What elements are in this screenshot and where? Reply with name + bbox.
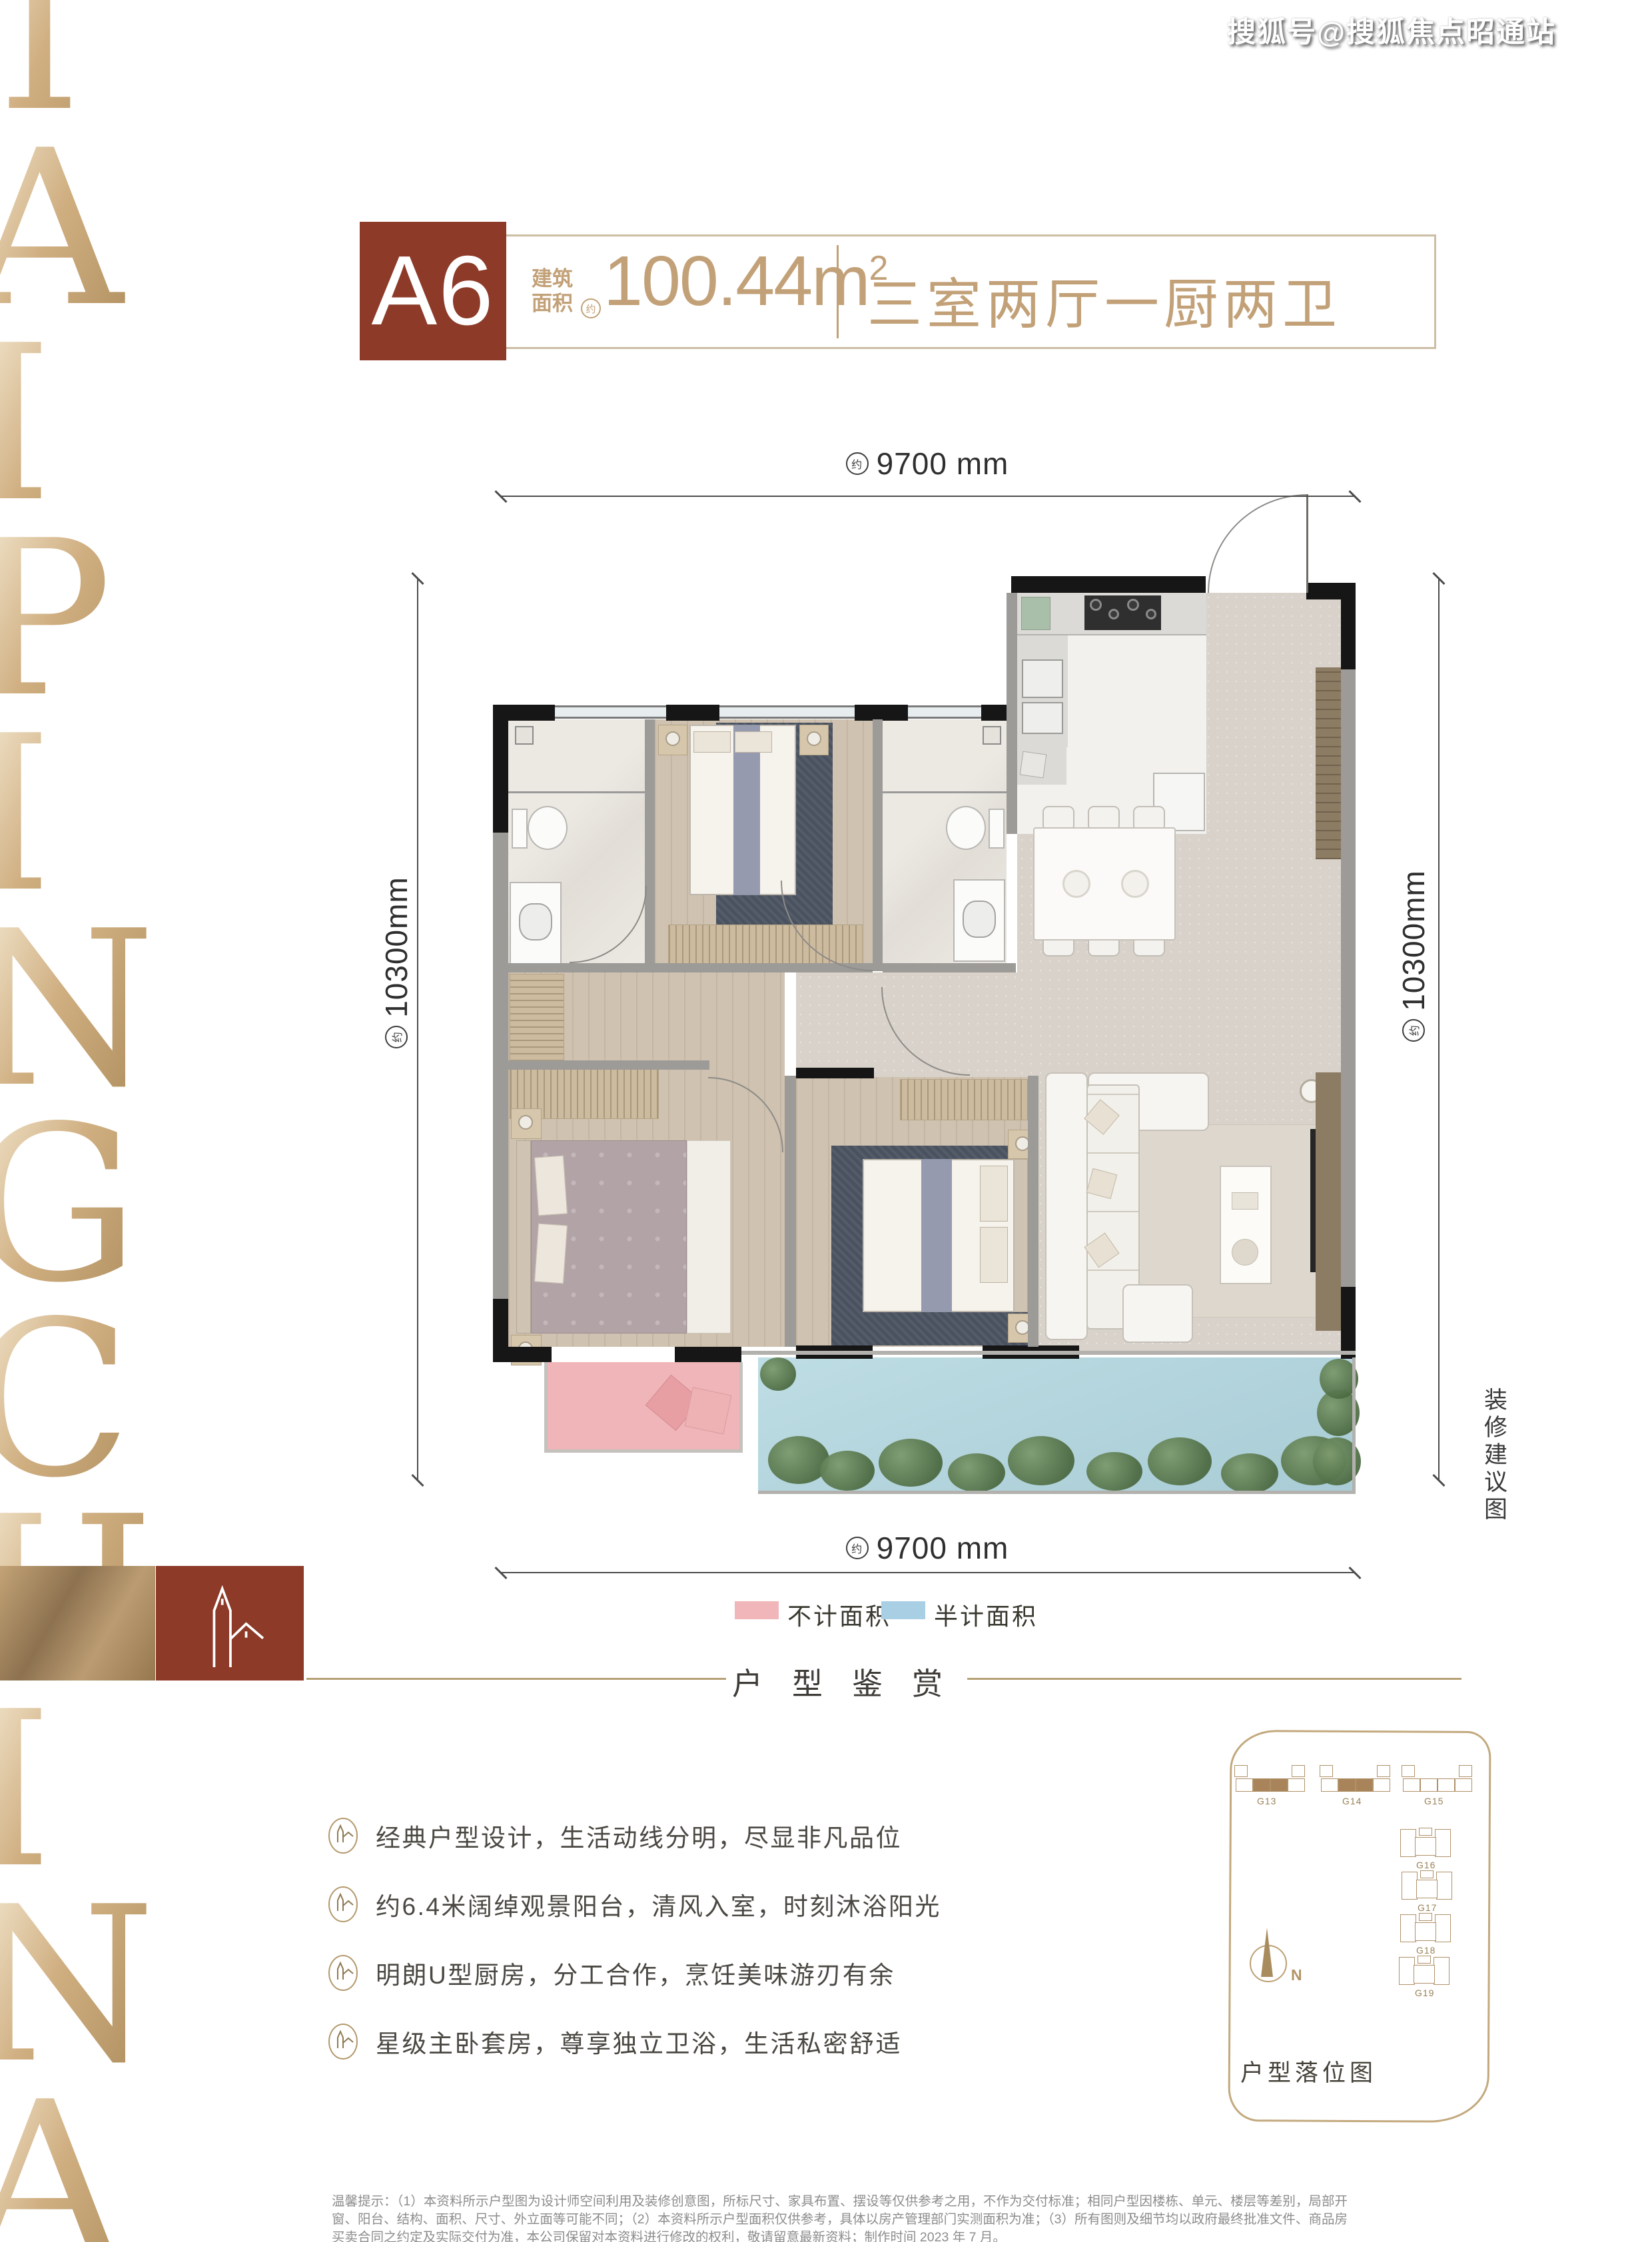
building-label: G18 bbox=[1416, 1945, 1436, 1956]
dim-right-value: 10300mm bbox=[1396, 870, 1432, 1011]
layout-text: 三室两厅一厨两卫 bbox=[867, 260, 1342, 339]
bed-pillow bbox=[534, 1156, 568, 1216]
dim-bottom-value: 9700 mm bbox=[877, 1530, 1009, 1566]
bed-runner bbox=[921, 1159, 952, 1312]
section-line-right bbox=[967, 1678, 1461, 1680]
burner-icon bbox=[1146, 609, 1156, 619]
note-char: 议 bbox=[1484, 1469, 1507, 1496]
wall-segment bbox=[1341, 1286, 1356, 1359]
terrace-rim bbox=[739, 1362, 743, 1453]
bed-pillow bbox=[735, 731, 772, 753]
brand-letter: N bbox=[0, 912, 168, 1107]
wall-segment bbox=[645, 719, 655, 971]
sink-bowl bbox=[963, 901, 996, 938]
burner-icon bbox=[1090, 599, 1102, 611]
poster-page: T A I P I N G C H I N A 搜狐号@搜狐焦点昭通站 A6 建… bbox=[0, 0, 1652, 2242]
building-label: G16 bbox=[1416, 1860, 1436, 1870]
terrace-rim bbox=[546, 1449, 741, 1453]
building-label: G13 bbox=[1257, 1796, 1276, 1806]
plant bbox=[948, 1453, 1005, 1492]
house-bullet-icon bbox=[328, 1886, 358, 1923]
dim-label-left: 约 10300mm bbox=[380, 843, 413, 1082]
wall-segment bbox=[1007, 593, 1017, 834]
bed-pillow bbox=[534, 1224, 568, 1284]
bed-headboard bbox=[1013, 1159, 1028, 1312]
wall-segment bbox=[883, 963, 1016, 972]
brand-letter: A bbox=[0, 131, 168, 326]
coffee-table bbox=[1220, 1166, 1272, 1284]
toilet-bowl bbox=[946, 806, 986, 850]
approx-circle-icon: 约 bbox=[846, 452, 869, 475]
lamp-icon bbox=[665, 731, 680, 746]
unit-badge: A6 bbox=[360, 222, 506, 360]
wardrobe bbox=[900, 1079, 1029, 1120]
section-line-left bbox=[306, 1678, 726, 1680]
feature-text: 星级主卧套房，尊享独立卫浴，生活私密舒适 bbox=[376, 2024, 902, 2059]
tv bbox=[1310, 1129, 1316, 1272]
compass-north-label: N bbox=[1291, 1966, 1302, 1984]
compass-needle-icon bbox=[1261, 1928, 1273, 1977]
bed-pillow bbox=[980, 1166, 1008, 1222]
door-arc bbox=[1208, 494, 1308, 593]
lamp-icon bbox=[807, 731, 821, 746]
header-divider bbox=[837, 245, 839, 338]
note-char: 图 bbox=[1484, 1496, 1507, 1523]
bed-sheet bbox=[687, 1140, 731, 1333]
brand-letter: I bbox=[0, 326, 168, 522]
area-value: 100.44m2 bbox=[604, 241, 887, 322]
legend-swatch-half bbox=[881, 1601, 925, 1619]
brand-letter: I bbox=[0, 717, 168, 912]
brand-letter: N bbox=[0, 1888, 168, 2083]
brand-letter: I bbox=[0, 1692, 168, 1888]
feature-text: 约6.4米阔绰观景阳台，清风入室，时刻沐浴阳光 bbox=[376, 1886, 941, 1922]
wall-segment bbox=[493, 963, 655, 972]
window bbox=[908, 705, 981, 719]
feature-text: 经典户型设计，生活动线分明，尽显非凡品位 bbox=[376, 1818, 902, 1854]
legend-label-half: 半计面积 bbox=[934, 1597, 1038, 1632]
sink-basin bbox=[1022, 659, 1063, 698]
burner-icon bbox=[1127, 599, 1139, 611]
plate bbox=[1062, 870, 1090, 898]
brand-letter: G bbox=[0, 1107, 168, 1302]
wall-segment bbox=[493, 705, 508, 833]
bed-headboard bbox=[516, 1140, 531, 1333]
plant bbox=[879, 1439, 943, 1487]
dim-line-bottom bbox=[500, 1572, 1356, 1573]
building-label: G15 bbox=[1424, 1796, 1444, 1806]
shower-glass bbox=[883, 791, 1007, 793]
window bbox=[719, 705, 855, 719]
wall-segment bbox=[1028, 1076, 1038, 1347]
feature-item: 经典户型设计，生活动线分明，尽显非凡品位 bbox=[328, 1817, 902, 1854]
wall-segment bbox=[666, 705, 719, 721]
toilet-tank bbox=[512, 809, 528, 849]
toilet-tank bbox=[989, 809, 1005, 849]
decor-suggestion-note: 装 修 建 议 图 bbox=[1484, 1387, 1507, 1523]
unit-code: A6 bbox=[371, 234, 494, 348]
note-char: 装 bbox=[1484, 1387, 1507, 1414]
feature-item: 明朗U型厨房，分工合作，烹饪美味游刃有余 bbox=[328, 1954, 895, 1992]
dim-left-value: 10300mm bbox=[378, 877, 414, 1018]
armchair bbox=[1122, 1284, 1193, 1343]
project-logo bbox=[156, 1566, 304, 1681]
wall-segment bbox=[796, 1068, 874, 1078]
approx-circle-icon: 约 bbox=[385, 1026, 408, 1048]
trash-bin bbox=[1020, 751, 1047, 779]
dim-line-top bbox=[500, 496, 1356, 497]
cutting-board bbox=[1021, 597, 1050, 630]
area-prefix: 建筑 面积 bbox=[532, 266, 573, 316]
wall-segment bbox=[493, 833, 508, 1299]
balcony-rim bbox=[758, 1491, 1356, 1494]
wall-segment bbox=[1341, 669, 1356, 1287]
plate bbox=[1121, 870, 1149, 898]
brand-letter: C bbox=[0, 1302, 168, 1497]
terrace-rim bbox=[544, 1362, 548, 1453]
sink-bowl bbox=[519, 903, 552, 940]
dim-top-value: 9700 mm bbox=[877, 446, 1009, 482]
wall-segment bbox=[873, 719, 883, 971]
terrace-pillow bbox=[684, 1387, 731, 1434]
area-number: 100.44m bbox=[604, 242, 869, 320]
house-bullet-icon bbox=[328, 1817, 358, 1854]
dim-label-right: 约 10300mm bbox=[1397, 836, 1430, 1076]
toilet-bowl bbox=[528, 806, 568, 850]
note-char: 建 bbox=[1484, 1441, 1507, 1469]
disclaimer-text: 温馨提示：（1）本资料所示户型图为设计师空间利用及装修创意图，所标尺寸、家具布置… bbox=[332, 2193, 1348, 2242]
plant bbox=[1008, 1436, 1074, 1485]
building-label: G19 bbox=[1415, 1988, 1434, 1998]
watermark: 搜狐号@搜狐焦点昭通站 bbox=[1227, 9, 1556, 51]
house-bullet-icon bbox=[328, 1954, 358, 1992]
wall-segment bbox=[508, 1060, 709, 1070]
shower-glass bbox=[508, 791, 645, 793]
table-decor bbox=[1232, 1192, 1258, 1210]
brand-letter: P bbox=[0, 522, 168, 717]
plant bbox=[1221, 1453, 1278, 1493]
sink-basin bbox=[1022, 702, 1063, 734]
table-decor bbox=[1232, 1239, 1258, 1266]
house-bullet-icon bbox=[328, 2023, 358, 2060]
section-title: 户型鉴赏 bbox=[723, 1660, 999, 1704]
tv-cabinet bbox=[1316, 1072, 1341, 1331]
shower-head-icon bbox=[983, 726, 1001, 745]
lamp-icon bbox=[518, 1115, 533, 1130]
window bbox=[555, 705, 666, 719]
gold-texture-band bbox=[0, 1566, 155, 1681]
feature-item: 约6.4米阔绰观景阳台，清风入室，时刻沐浴阳光 bbox=[328, 1886, 941, 1923]
dim-line-left bbox=[417, 578, 418, 1480]
dining-table bbox=[1033, 827, 1176, 940]
approx-circle-icon: 约 bbox=[581, 298, 601, 318]
approx-circle-icon: 约 bbox=[846, 1537, 869, 1559]
approx-circle-icon: 约 bbox=[1402, 1019, 1425, 1042]
wall-segment bbox=[785, 1076, 796, 1347]
feature-item: 星级主卧套房，尊享独立卫浴，生活私密舒适 bbox=[328, 2023, 902, 2060]
plant bbox=[1148, 1437, 1212, 1485]
burner-icon bbox=[1108, 609, 1119, 619]
feature-text: 明朗U型厨房，分工合作，烹饪美味游刃有余 bbox=[376, 1955, 895, 1991]
plant bbox=[1086, 1452, 1142, 1491]
balcony-rim bbox=[1352, 1357, 1356, 1494]
legend-swatch-excluded bbox=[735, 1601, 779, 1619]
plant bbox=[820, 1451, 875, 1491]
wall-segment bbox=[855, 705, 908, 721]
area-prefix-line1: 建筑 bbox=[532, 266, 573, 291]
brand-vertical-taiping-china: T A I P I N G C H I N A bbox=[0, 0, 168, 2242]
bed-pillow bbox=[980, 1227, 1008, 1283]
wall-segment bbox=[1011, 576, 1206, 593]
sofa-back bbox=[1045, 1072, 1088, 1340]
door-leaf bbox=[1306, 494, 1308, 593]
site-plan-caption: 户型落位图 bbox=[1240, 2054, 1377, 2088]
floor-plan bbox=[455, 526, 1356, 1499]
dim-label-top: 约 9700 mm bbox=[799, 445, 1055, 482]
dim-label-bottom: 约 9700 mm bbox=[799, 1529, 1055, 1567]
wall-segment bbox=[493, 1347, 552, 1362]
wall-segment bbox=[675, 1347, 741, 1362]
balcony-door-line bbox=[741, 1351, 1356, 1355]
note-char: 修 bbox=[1484, 1414, 1507, 1441]
wall-segment bbox=[1341, 583, 1356, 669]
plant bbox=[768, 1436, 829, 1484]
building-label: G14 bbox=[1342, 1796, 1362, 1806]
bed-pillow bbox=[693, 731, 731, 753]
legend-label-excluded: 不计面积 bbox=[787, 1597, 891, 1632]
dim-line-right bbox=[1438, 578, 1440, 1480]
building-label: G17 bbox=[1418, 1902, 1437, 1913]
building-logo-icon bbox=[186, 1576, 274, 1671]
shower-head-icon bbox=[515, 726, 534, 745]
plant bbox=[760, 1357, 796, 1391]
area-prefix-line2: 面积 bbox=[532, 291, 573, 316]
entry-closet bbox=[1316, 667, 1341, 859]
